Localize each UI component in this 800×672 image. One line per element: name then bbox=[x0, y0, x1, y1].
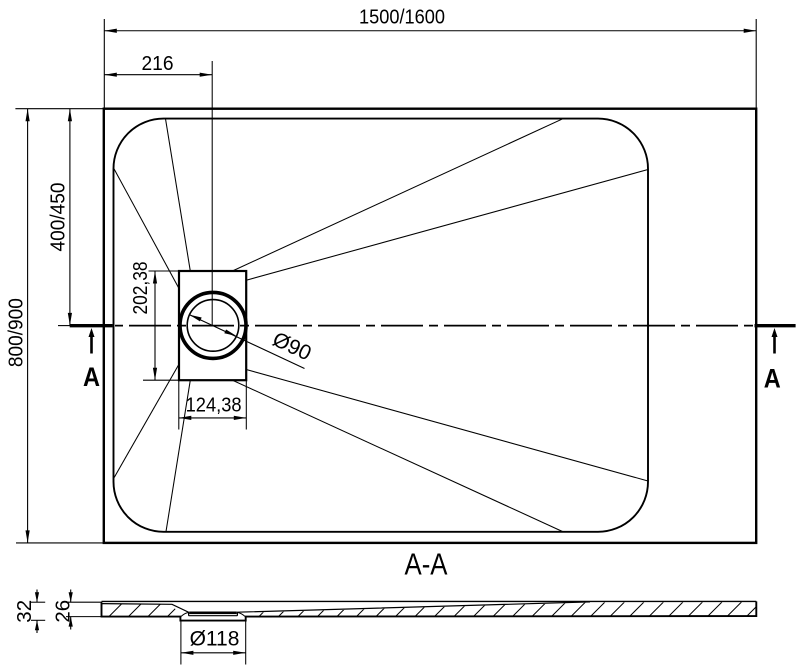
svg-text:1500/1600: 1500/1600 bbox=[359, 6, 445, 29]
svg-text:26: 26 bbox=[52, 600, 75, 623]
svg-text:Ø118: Ø118 bbox=[190, 628, 240, 651]
svg-text:32: 32 bbox=[13, 600, 36, 623]
svg-text:A-A: A-A bbox=[405, 547, 449, 581]
svg-text:202,38: 202,38 bbox=[129, 262, 152, 315]
svg-text:400/450: 400/450 bbox=[46, 183, 69, 252]
svg-text:124,38: 124,38 bbox=[186, 394, 242, 417]
svg-text:A: A bbox=[83, 362, 100, 392]
svg-text:216: 216 bbox=[142, 52, 174, 75]
svg-text:A: A bbox=[764, 364, 781, 394]
svg-text:800/900: 800/900 bbox=[4, 298, 27, 367]
